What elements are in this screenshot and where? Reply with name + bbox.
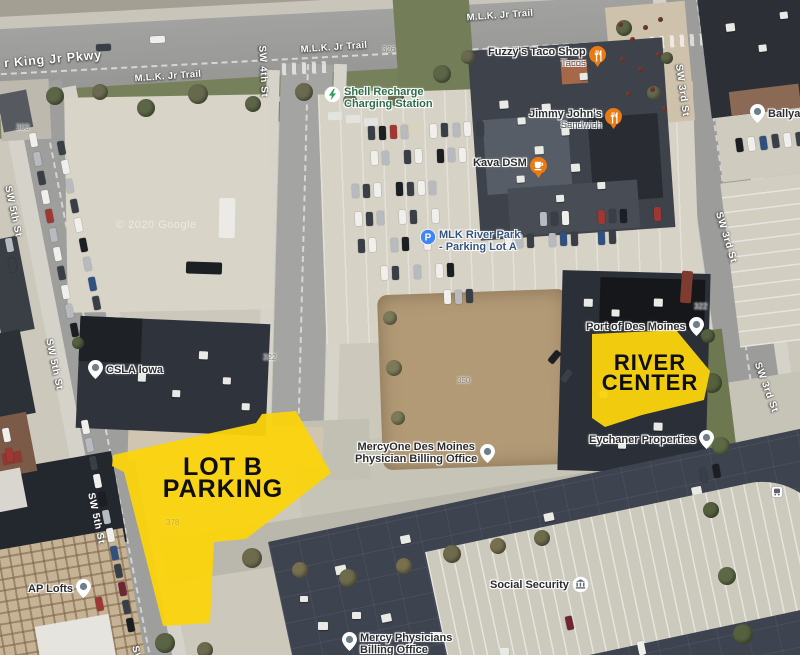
poi-sublabel: Tacos [488, 58, 586, 69]
svg-text:P: P [425, 233, 432, 244]
place-pin-icon[interactable] [76, 579, 91, 598]
poi-label: Shell Recharge [344, 86, 433, 98]
poi-social-security[interactable]: Social Security [490, 576, 589, 593]
poi-csla-iowa[interactable]: CSLA Iowa [88, 360, 163, 379]
poi-label: CSLA Iowa [106, 364, 163, 376]
ev-charging-icon[interactable] [324, 86, 341, 103]
poi-label: Kava DSM [473, 157, 527, 169]
poi-label: Social Security [490, 579, 569, 591]
poi-label: Jimmy John's [529, 108, 602, 120]
poi-label: AP Lofts [28, 583, 73, 595]
restaurant-icon[interactable] [589, 46, 606, 67]
place-pin-icon[interactable] [699, 430, 714, 449]
restaurant-icon[interactable] [605, 108, 622, 129]
poi-label-2: Billing Office [360, 644, 452, 655]
parking-icon[interactable]: P [420, 229, 436, 245]
lot-b-parking-label: LOT B PARKING [128, 457, 318, 500]
poi-mlk-river-park-lot-a[interactable]: P MLK River Park - Parking Lot A [420, 229, 520, 253]
poi-label: MercyOne Des Moines [355, 441, 477, 453]
poi-label-2: Physician Billing Office [355, 453, 477, 465]
lot-b-line2: PARKING [128, 479, 318, 501]
poi-label-2: - Parking Lot A [439, 241, 520, 253]
google-watermark: © 2020 Google [116, 219, 197, 231]
poi-label: Port of Des Moines [586, 321, 686, 333]
poi-label: Eychaner Properties [589, 434, 696, 446]
poi-fuzzys-taco-shop[interactable]: Fuzzy's Taco Shop Tacos [488, 46, 606, 69]
poi-label: MLK River Park [439, 229, 520, 241]
transit-stop-icon[interactable] [771, 486, 783, 498]
satellite-map[interactable]: LOT B PARKING RIVER CENTER 303 326 322 3… [0, 0, 800, 655]
place-pin-icon[interactable] [689, 317, 704, 336]
river-center-line2: CENTER [583, 373, 717, 393]
poi-shell-recharge[interactable]: Shell Recharge Charging Station [324, 86, 433, 110]
government-building-icon[interactable] [572, 576, 589, 593]
poi-label: Fuzzy's Taco Shop [488, 46, 586, 58]
poi-mercyone-billing[interactable]: MercyOne Des Moines Physician Billing Of… [355, 441, 495, 465]
poi-jimmy-johns[interactable]: Jimmy John's Sandwich [529, 108, 622, 131]
place-pin-icon[interactable] [342, 632, 357, 651]
poi-port-of-des-moines[interactable]: Port of Des Moines [586, 317, 704, 336]
place-pin-icon[interactable] [750, 104, 765, 123]
poi-ap-lofts[interactable]: AP Lofts [28, 579, 91, 598]
poi-kava-dsm[interactable]: Kava DSM [473, 157, 547, 178]
place-pin-icon[interactable] [88, 360, 103, 379]
poi-label: Mercy Physicians [360, 632, 452, 644]
cafe-icon[interactable] [530, 157, 547, 178]
poi-mercy-physicians[interactable]: Mercy Physicians Billing Office [342, 632, 452, 655]
poi-ballyard[interactable]: Ballyard [750, 104, 800, 123]
poi-sublabel: Sandwich [529, 120, 602, 131]
poi-label-2: Charging Station [344, 98, 433, 110]
lot-b-parking-overlay[interactable] [112, 411, 331, 626]
parcel-number: 378 [166, 518, 179, 527]
poi-eychaner-properties[interactable]: Eychaner Properties [589, 430, 714, 449]
place-pin-icon[interactable] [480, 444, 495, 463]
poi-label: Ballyard [768, 108, 800, 120]
river-center-label: RIVER CENTER [583, 353, 717, 392]
